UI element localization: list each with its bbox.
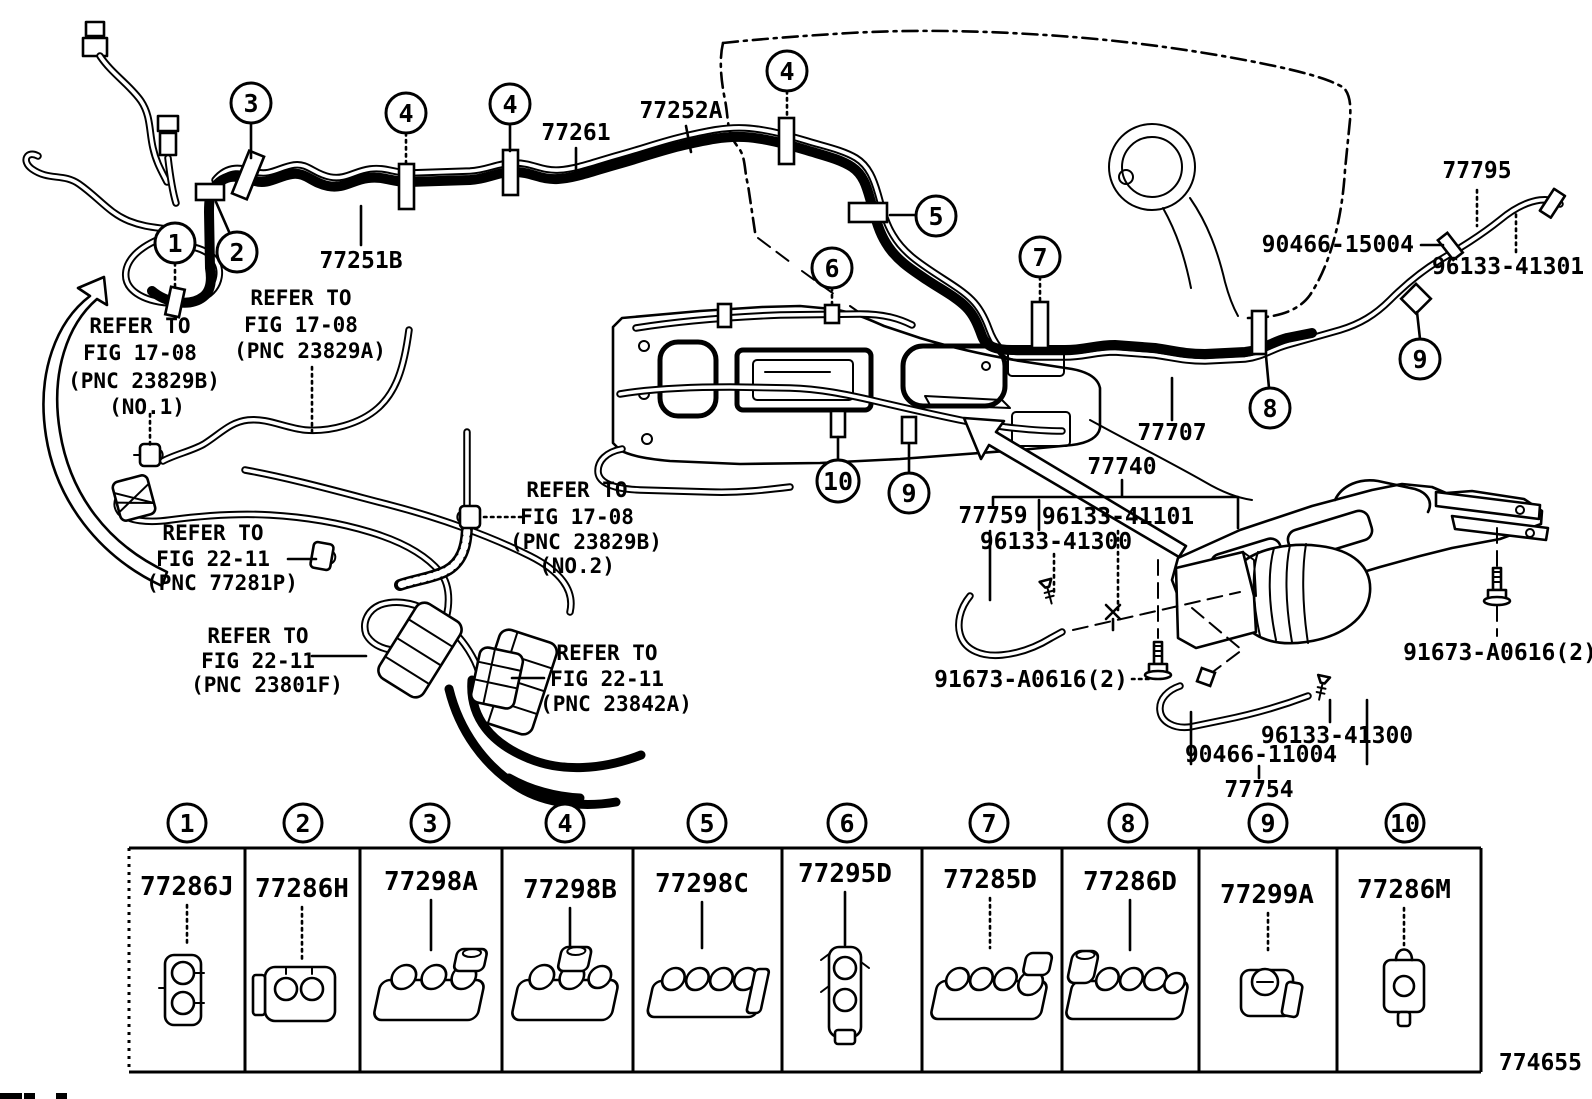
corner-crop-marks: [0, 1093, 67, 1099]
label-77251B: 77251B: [319, 248, 402, 274]
callout-4b-number: 4: [502, 90, 517, 119]
svg-text:(PNC 23801F): (PNC 23801F): [191, 673, 343, 697]
legend-no-8: 8: [1120, 809, 1135, 838]
bolt-91673-left: [1145, 642, 1171, 679]
legend-part-77286H: 77286H: [255, 874, 349, 904]
svg-text:(NO.1): (NO.1): [109, 395, 185, 419]
clip-77298C-glyph: [646, 968, 769, 1017]
clamp-9-center: [902, 417, 916, 443]
callout-7: 7: [1020, 237, 1060, 277]
svg-text:REFER TO: REFER TO: [162, 521, 263, 545]
hose-77754: [1160, 668, 1308, 727]
callout-1: 1: [155, 223, 195, 263]
clip-77286H-glyph: [253, 967, 335, 1021]
label-91673-A0616-right: 91673-A0616(2): [1403, 640, 1592, 666]
note-fig22-11-77281P: REFER TO FIG 22-11 (PNC 77281P): [146, 521, 298, 595]
clip-77286M-glyph: [1384, 950, 1424, 1027]
screw-96133-41300-lower: [1313, 675, 1330, 701]
callout-8: 8: [1250, 388, 1290, 428]
legend-part-77286D: 77286D: [1083, 867, 1177, 897]
legend-no-7: 7: [981, 809, 996, 838]
callout-4a-number: 4: [398, 99, 413, 128]
legend-table: 1 2 3 4 5 6 7 8 9 10 77286J 77286H 77298…: [129, 804, 1481, 1072]
callout-3: 3: [231, 83, 271, 123]
clamp-10: [831, 411, 845, 437]
clip-77299A-glyph: [1241, 969, 1303, 1018]
hose-77759: [959, 596, 1062, 655]
front-pipe-cluster: [26, 22, 219, 303]
svg-text:REFER TO: REFER TO: [89, 314, 190, 338]
clamp-4c: [779, 118, 794, 164]
callout-6-number: 6: [824, 254, 839, 283]
legend-no-4: 4: [557, 809, 572, 838]
clamp-1: [165, 287, 185, 317]
note-fig17-08-no1: REFER TO FIG 17-08 (PNC 23829B) (NO.1): [68, 314, 220, 419]
svg-text:FIG 22-11: FIG 22-11: [201, 649, 315, 673]
callout-10: 10: [817, 460, 859, 502]
svg-text:(PNC 23829B): (PNC 23829B): [68, 369, 220, 393]
callout-9-right: 9: [1400, 339, 1440, 379]
clip-77298A-glyph: [373, 949, 492, 1020]
callout-2: 2: [217, 232, 257, 272]
callout-2-number: 2: [229, 238, 244, 267]
callout-4b: 4: [490, 84, 530, 124]
clamp-6: [825, 305, 839, 323]
label-77795: 77795: [1442, 158, 1511, 184]
svg-text:FIG 17-08: FIG 17-08: [520, 505, 634, 529]
callout-4a: 4: [386, 93, 426, 133]
legend-part-77298A: 77298A: [384, 867, 478, 897]
clip-77295D-glyph: [821, 947, 869, 1044]
label-96133-41300-upper: 96133-41300: [980, 529, 1132, 555]
callout-9c-number: 9: [901, 479, 916, 508]
clamp-4b: [503, 150, 518, 195]
label-91673-A0616-left: 91673-A0616(2): [934, 667, 1128, 693]
legend-part-77285D: 77285D: [943, 865, 1037, 895]
label-96133-41101: 96133-41101: [1042, 504, 1194, 530]
svg-text:REFER TO: REFER TO: [250, 286, 351, 310]
note-fig22-11-23842A: REFER TO FIG 22-11 (PNC 23842A): [540, 641, 692, 716]
callout-9-center: 9: [889, 473, 929, 513]
pipe-connector: [158, 116, 178, 131]
legend-part-77298B: 77298B: [523, 875, 617, 905]
svg-text:FIG 17-08: FIG 17-08: [83, 341, 197, 365]
svg-text:REFER TO: REFER TO: [526, 478, 627, 502]
legend-no-1: 1: [179, 809, 194, 838]
clip-fig2211-77281P: [310, 541, 338, 571]
legend-part-77299A: 77299A: [1220, 880, 1314, 910]
pipe-connector: [83, 38, 107, 56]
pipe-connector: [160, 133, 176, 155]
clamp-crossmember: [718, 304, 731, 327]
clamp-2: [196, 184, 224, 200]
hose-end-fitting: [1540, 189, 1565, 218]
note-fig17-08-23829A: REFER TO FIG 17-08 (PNC 23829A): [234, 286, 386, 363]
legend-no-6: 6: [839, 809, 854, 838]
label-77740: 77740: [1087, 454, 1156, 480]
callout-1-number: 1: [167, 229, 182, 258]
legend-no-9: 9: [1260, 809, 1275, 838]
fuel-filler-opening: [1109, 124, 1238, 316]
clip-fig1708-no1: [134, 444, 163, 466]
label-77754: 77754: [1224, 777, 1293, 803]
pipe-connector: [86, 22, 104, 36]
legend-no-2: 2: [295, 809, 310, 838]
clip-77285D-glyph: [930, 953, 1054, 1019]
svg-text:REFER TO: REFER TO: [207, 624, 308, 648]
callout-4c: 4: [767, 51, 807, 91]
label-77252A: 77252A: [639, 98, 722, 124]
svg-text:REFER TO: REFER TO: [556, 641, 657, 665]
callout-8-number: 8: [1262, 394, 1277, 423]
clip-77286J-glyph: [159, 955, 204, 1025]
legend-no-5: 5: [699, 809, 714, 838]
svg-text:FIG 22-11: FIG 22-11: [156, 547, 270, 571]
note-fig22-11-23801F: REFER TO FIG 22-11 (PNC 23801F): [191, 624, 343, 697]
svg-text:(PNC 77281P): (PNC 77281P): [146, 571, 298, 595]
parts-diagram-page: 1 2 3 4 4 4 5 6 7 8 9 9 10 77261 77252A …: [0, 0, 1592, 1099]
callout-6: 6: [812, 248, 852, 288]
svg-text:FIG 17-08: FIG 17-08: [244, 313, 358, 337]
label-96133-41301: 96133-41301: [1432, 254, 1584, 280]
svg-text:FIG 22-11: FIG 22-11: [550, 667, 664, 691]
clamp-8: [1252, 311, 1266, 354]
legend-part-77286M: 77286M: [1357, 875, 1451, 905]
clip-77286D-glyph: [1059, 951, 1195, 1019]
svg-text:(PNC 23842A): (PNC 23842A): [540, 692, 692, 716]
legend-no-10: 10: [1390, 809, 1420, 838]
figure-number: 774655: [1499, 1050, 1582, 1076]
bolt-91673-right: [1484, 568, 1510, 605]
callout-4c-number: 4: [779, 57, 794, 86]
label-90466-15004: 90466-15004: [1262, 232, 1414, 258]
callout-7-number: 7: [1032, 243, 1047, 272]
label-77261: 77261: [541, 120, 610, 146]
callout-9r-number: 9: [1412, 345, 1427, 374]
legend-part-77298C: 77298C: [655, 869, 749, 899]
clamp-4a: [399, 164, 414, 209]
legend-clip-glyphs: [159, 947, 1424, 1044]
legend-part-77286J: 77286J: [140, 872, 234, 902]
fuel-tank-outline: [721, 31, 1351, 327]
svg-text:(PNC 23829A): (PNC 23829A): [234, 339, 386, 363]
clamp-7: [1032, 302, 1048, 348]
fuel-piping-diagram: 1 2 3 4 4 4 5 6 7 8 9 9 10 77261 77252A …: [0, 0, 1592, 1099]
clip-fig1708-no2: [457, 506, 480, 528]
legend-part-77295D: 77295D: [798, 859, 892, 889]
label-77707: 77707: [1137, 420, 1206, 446]
svg-text:(NO.2): (NO.2): [539, 554, 615, 578]
legend-no-3: 3: [422, 809, 437, 838]
legend-header-numbers: 1 2 3 4 5 6 7 8 9 10: [168, 804, 1424, 842]
label-77759: 77759: [958, 503, 1027, 529]
clamp-5: [849, 203, 887, 222]
callout-3-number: 3: [243, 89, 258, 118]
label-90466-11004: 90466-11004: [1185, 742, 1337, 768]
svg-text:(PNC 23829B): (PNC 23829B): [510, 530, 662, 554]
callout-5-number: 5: [928, 202, 943, 231]
callout-5: 5: [916, 196, 956, 236]
hose-clip: [1197, 668, 1215, 686]
callout-10-number: 10: [823, 467, 853, 496]
legend-part-numbers: 77286J 77286H 77298A 77298B 77298C 77295…: [140, 859, 1451, 910]
clip-77298B-glyph: [511, 947, 627, 1020]
